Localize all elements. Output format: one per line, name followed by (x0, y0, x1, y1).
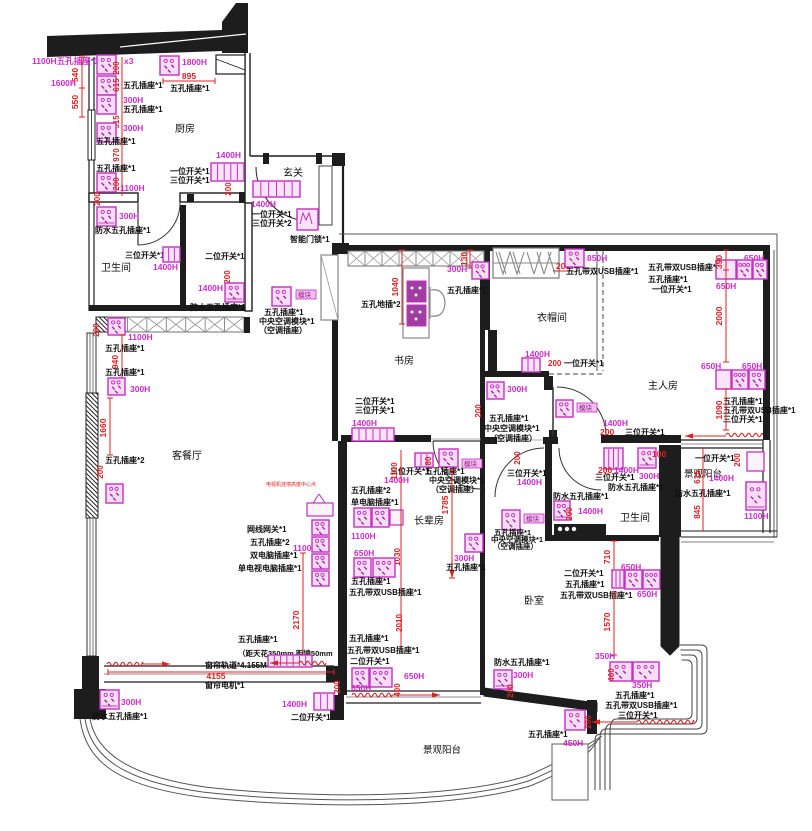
svg-text:五孔带双USB插座*1: 五孔带双USB插座*1 (349, 587, 422, 597)
svg-text:二位开关*1: 二位开关*1 (350, 656, 390, 666)
svg-text:五孔插座*2: 五孔插座*2 (250, 537, 290, 547)
svg-text:300H: 300H (454, 553, 474, 563)
svg-text:双电脑插座*1: 双电脑插座*1 (250, 550, 298, 560)
svg-text:300H: 300H (121, 697, 141, 707)
svg-text:五孔带双USB插座*1: 五孔带双USB插座*1 (648, 262, 721, 272)
svg-text:（空调插座）: （空调插座） (259, 325, 307, 335)
svg-text:网线网关*1: 网线网关*1 (247, 524, 287, 534)
svg-text:五孔带双USB插座*1: 五孔带双USB插座*1 (605, 700, 678, 710)
svg-text:中央空调模块*1: 中央空调模块*1 (484, 423, 540, 433)
svg-text:五孔插座*1: 五孔插座*1 (447, 285, 487, 295)
svg-text:650H: 650H (354, 548, 374, 558)
svg-text:1100: 1100 (390, 462, 399, 480)
svg-text:三位开关*1: 三位开关*1 (723, 414, 763, 424)
svg-text:五孔插座*1: 五孔插座*1 (123, 80, 163, 90)
svg-text:1400H: 1400H (216, 150, 241, 160)
svg-text:1400H: 1400H (198, 283, 223, 293)
svg-text:二位开关*1: 二位开关*1 (291, 712, 331, 722)
svg-text:五孔插座*1: 五孔插座*1 (489, 413, 529, 423)
svg-text:（空调插座）: （空调插座） (489, 433, 537, 443)
svg-text:五孔插座*1: 五孔插座*1 (446, 562, 486, 572)
svg-text:五孔插座*1: 五孔插座*1 (425, 466, 465, 476)
svg-text:模块: 模块 (579, 403, 593, 412)
svg-text:1660: 1660 (98, 418, 108, 437)
svg-text:200: 200 (333, 680, 342, 694)
svg-text:二位开关*1: 二位开关*1 (355, 396, 395, 406)
svg-text:1400H: 1400H (251, 199, 276, 209)
svg-text:200: 200 (733, 453, 742, 467)
svg-text:五孔插座*1: 五孔插座*1 (351, 576, 391, 586)
svg-text:200: 200 (584, 715, 593, 729)
svg-text:一位开关*1: 一位开关*1 (695, 453, 735, 463)
svg-text:三位开关*2: 三位开关*2 (252, 218, 292, 228)
svg-text:390: 390 (714, 255, 724, 269)
svg-text:三位开关*1: 三位开关*1 (618, 710, 658, 720)
svg-text:615: 615 (693, 470, 702, 484)
svg-text:客餐厅: 客餐厅 (172, 449, 202, 462)
svg-text:五孔带双USB插座*1: 五孔带双USB插座*1 (347, 645, 420, 655)
svg-text:1785: 1785 (440, 495, 450, 514)
svg-text:防水五孔插座*1: 防水五孔插座*1 (494, 657, 550, 667)
svg-text:200: 200 (223, 270, 232, 284)
svg-text:单电视电脑插座*1: 单电视电脑插座*1 (238, 563, 302, 573)
svg-text:300H: 300H (123, 123, 143, 133)
svg-text:智能门锁*1: 智能门锁*1 (290, 234, 330, 244)
svg-text:卧室: 卧室 (524, 594, 544, 607)
svg-text:200: 200 (112, 61, 121, 75)
svg-text:（空调插座）: （空调插座） (431, 484, 479, 494)
svg-text:300H: 300H (513, 670, 533, 680)
svg-text:1400H: 1400H (153, 262, 178, 272)
svg-text:五孔插座*1: 五孔插座*1 (105, 367, 145, 377)
svg-text:1570: 1570 (602, 612, 612, 631)
svg-text:五孔插座*1: 五孔插座*1 (565, 579, 605, 589)
svg-text:x3: x3 (124, 56, 134, 66)
svg-text:2000: 2000 (714, 306, 724, 325)
svg-text:单电脑插座*1: 单电脑插座*1 (351, 497, 399, 507)
svg-text:1090: 1090 (714, 400, 724, 419)
svg-text:2170: 2170 (291, 610, 301, 629)
svg-text:五孔插座*1: 五孔插座*1 (105, 343, 145, 353)
svg-text:200: 200 (548, 359, 562, 368)
svg-text:1100H: 1100H (120, 183, 145, 193)
svg-text:五孔插座*1: 五孔插座*1 (648, 274, 688, 284)
svg-text:书房: 书房 (394, 354, 414, 367)
svg-text:400: 400 (393, 683, 402, 697)
svg-text:200: 200 (93, 192, 102, 206)
svg-text:中央空调模块*1: 中央空调模块*1 (259, 316, 315, 326)
svg-text:防水五孔插座*1: 防水五孔插座*1 (95, 225, 151, 235)
svg-text:厨房: 厨房 (175, 122, 195, 135)
svg-text:200: 200 (600, 427, 614, 437)
svg-text:三位开关*1: 三位开关*1 (595, 472, 635, 482)
svg-text:350H: 350H (632, 680, 652, 690)
svg-text:防水五孔插座*1: 防水五孔插座*1 (553, 491, 609, 501)
svg-text:100: 100 (652, 449, 666, 459)
svg-text:300H: 300H (447, 264, 467, 274)
svg-text:五孔插座*1: 五孔插座*1 (615, 690, 655, 700)
svg-text:650H: 650H (637, 589, 657, 599)
svg-text:4155: 4155 (207, 671, 226, 681)
svg-text:895: 895 (182, 71, 196, 81)
svg-text:长辈房: 长辈房 (414, 514, 444, 527)
svg-text:（空调插座）: （空调插座） (493, 541, 538, 551)
svg-text:五孔插座*1: 五孔插座*1 (170, 83, 210, 93)
svg-text:2010: 2010 (395, 614, 404, 632)
svg-text:模块: 模块 (526, 514, 540, 523)
svg-text:防水五孔插座*1: 防水五孔插座*1 (92, 711, 148, 721)
svg-text:200: 200 (92, 323, 101, 337)
svg-text:窗帘轨道*4.155M: 窗帘轨道*4.155M (205, 660, 267, 670)
svg-text:1600H: 1600H (51, 78, 76, 88)
svg-text:615: 615 (112, 78, 121, 92)
svg-text:845: 845 (693, 505, 702, 519)
svg-text:一位开关*1: 一位开关*1 (252, 209, 292, 219)
svg-text:1100H: 1100H (128, 332, 153, 342)
svg-text:710: 710 (602, 550, 612, 564)
svg-text:一位开关*1: 一位开关*1 (652, 284, 692, 294)
svg-text:1800H: 1800H (182, 57, 207, 67)
svg-text:850H: 850H (587, 253, 607, 263)
svg-text:三位开关*1: 三位开关*1 (170, 175, 210, 185)
svg-text:模块: 模块 (464, 459, 478, 468)
svg-text:中央空调模块*1: 中央空调模块*1 (429, 475, 485, 485)
svg-text:防水五孔插座*1: 防水五孔插座*1 (608, 482, 664, 492)
svg-text:200: 200 (513, 451, 522, 465)
svg-text:460: 460 (607, 668, 616, 682)
svg-text:970: 970 (112, 148, 121, 162)
svg-text:电视机挂墙高度中心点: 电视机挂墙高度中心点 (266, 481, 316, 488)
svg-text:1100H: 1100H (744, 511, 769, 521)
svg-text:300H: 300H (123, 95, 143, 105)
svg-text:300H: 300H (507, 384, 527, 394)
svg-text:五孔插座*2: 五孔插座*2 (351, 485, 391, 495)
svg-text:1400H: 1400H (282, 699, 307, 709)
svg-text:1400H: 1400H (709, 473, 734, 483)
svg-text:五孔插座*2: 五孔插座*2 (105, 455, 145, 465)
svg-text:一位开关*1: 一位开关*1 (170, 166, 210, 176)
svg-text:650H: 650H (351, 683, 371, 693)
svg-text:五孔带双USB插座*1: 五孔带双USB插座*1 (560, 590, 633, 600)
svg-text:200: 200 (474, 404, 483, 418)
svg-text:1400H: 1400H (352, 418, 377, 428)
svg-text:300H: 300H (119, 211, 139, 221)
svg-text:200: 200 (224, 182, 233, 196)
svg-text:五孔地插*2: 五孔地插*2 (361, 299, 401, 309)
svg-text:300H: 300H (639, 471, 659, 481)
svg-text:五孔插座*1: 五孔插座*1 (264, 307, 304, 317)
svg-text:550: 550 (70, 95, 80, 109)
svg-text:三位开关*1: 三位开关*1 (125, 250, 165, 260)
svg-text:窗帘电机*1: 窗帘电机*1 (205, 680, 245, 690)
svg-text:940: 940 (110, 355, 120, 369)
svg-text:200: 200 (565, 507, 574, 521)
svg-text:卫生间: 卫生间 (620, 511, 650, 524)
svg-text:一位开关*1: 一位开关*1 (564, 358, 604, 368)
svg-text:三位开关*1: 三位开关*1 (355, 405, 395, 415)
svg-text:玄关: 玄关 (283, 166, 303, 179)
svg-text:1100H: 1100H (351, 531, 376, 541)
svg-text:二位开关*1: 二位开关*1 (205, 251, 245, 261)
svg-text:450H: 450H (563, 738, 583, 748)
svg-text:350H: 350H (595, 651, 615, 661)
svg-text:五孔插座*1: 五孔插座*1 (123, 104, 163, 114)
svg-text:80: 80 (424, 456, 433, 465)
svg-text:五孔插座*1: 五孔插座*1 (723, 396, 763, 406)
svg-text:景观阳台: 景观阳台 (423, 744, 461, 756)
svg-text:1400H: 1400H (517, 477, 542, 487)
svg-text:650H: 650H (404, 671, 424, 681)
svg-text:五孔带双USB插座*1: 五孔带双USB插座*1 (723, 405, 796, 415)
svg-text:200: 200 (112, 177, 121, 191)
svg-text:模块: 模块 (298, 290, 312, 299)
svg-text:五孔带双USB插座*1: 五孔带双USB插座*1 (566, 266, 639, 276)
svg-text:三位开关*1: 三位开关*1 (625, 427, 665, 437)
svg-text:300H: 300H (130, 384, 150, 394)
svg-text:防水五孔插座*1: 防水五孔插座*1 (190, 302, 246, 312)
svg-text:1100H五孔插座*3: 1100H五孔插座*3 (32, 56, 99, 66)
svg-text:1040: 1040 (390, 277, 400, 296)
svg-text:五孔插座*1: 五孔插座*1 (96, 163, 136, 173)
svg-text:200: 200 (96, 465, 105, 479)
svg-text:五孔插座*1: 五孔插座*1 (349, 633, 389, 643)
svg-text:1400H: 1400H (578, 506, 603, 516)
svg-text:衣帽间: 衣帽间 (537, 311, 567, 324)
svg-text:五孔插座*1: 五孔插座*1 (96, 136, 136, 146)
svg-text:五孔插座*1: 五孔插座*1 (238, 634, 278, 644)
svg-text:主人房: 主人房 (648, 379, 678, 392)
svg-text:200: 200 (506, 684, 515, 698)
svg-text:二位开关*1: 二位开关*1 (564, 568, 604, 578)
svg-text:卫生间: 卫生间 (101, 261, 131, 274)
